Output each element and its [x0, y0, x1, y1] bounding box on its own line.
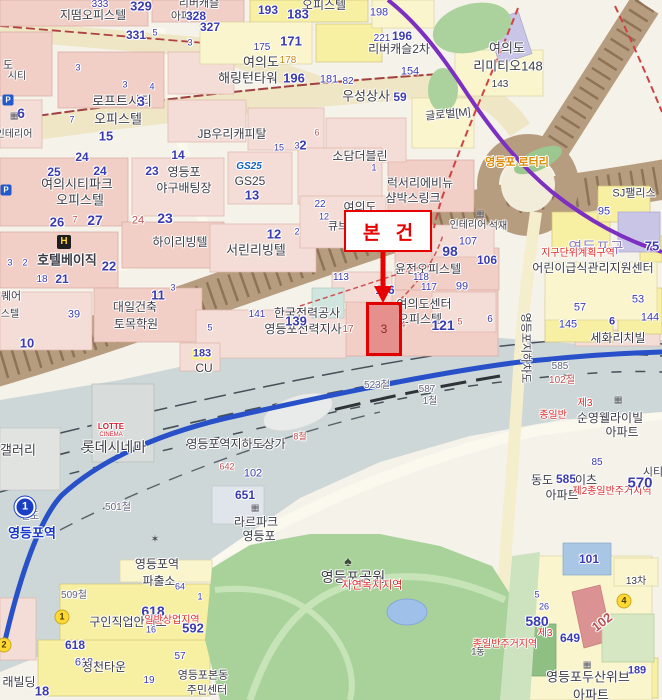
map-canvas[interactable]: 지떰오피스텔333329리버캐슬아파트32833153오피스텔193183198… — [0, 0, 662, 700]
pond — [387, 599, 427, 625]
basemap — [0, 0, 662, 700]
subject-parcel-number: 3 — [381, 322, 388, 336]
subject-parcel-highlight: 3 — [366, 302, 402, 356]
subject-annotation-label: 본 건 — [363, 218, 418, 245]
subject-annotation-box: 본 건 — [344, 210, 432, 252]
cinema-building — [92, 384, 154, 462]
park-yeongdeungpo — [205, 534, 512, 700]
